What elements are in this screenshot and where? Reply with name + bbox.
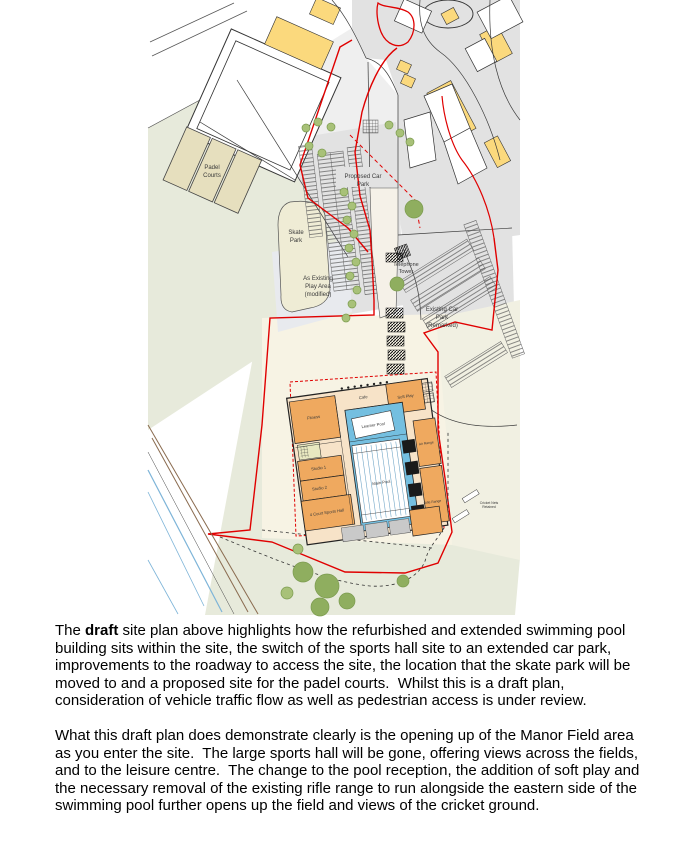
paragraph-1-text: site plan above highlights how the refur… bbox=[55, 622, 634, 709]
existing-car-park-label: Existing Car bbox=[426, 307, 458, 313]
existing-car-park-label: (Remarked) bbox=[426, 323, 458, 329]
site-plan-drawing: Padel Courts Skate Park As Existing Play… bbox=[0, 0, 685, 620]
telephone-tower-label: Telephone bbox=[393, 262, 418, 268]
existing-car-park-label: Park bbox=[436, 315, 449, 321]
leisure-centre-building bbox=[286, 375, 452, 551]
play-area-label: Play Area bbox=[305, 284, 331, 290]
paragraph-2: What this draft plan does demonstrate cl… bbox=[55, 727, 651, 815]
skate-park-label: Park bbox=[290, 238, 303, 244]
play-area-label: As Existing bbox=[303, 276, 333, 282]
body-text: The draft site plan above highlights how… bbox=[55, 622, 651, 832]
proposed-car-park-label: Park bbox=[357, 182, 370, 188]
paragraph-1-text: The bbox=[55, 622, 85, 639]
play-area-label: (modified) bbox=[305, 292, 332, 298]
paragraph-1: The draft site plan above highlights how… bbox=[55, 622, 651, 710]
proposed-car-park-label: Proposed Car bbox=[344, 174, 381, 180]
nets-note-label: Retained bbox=[482, 505, 496, 509]
fitness-block bbox=[289, 396, 340, 444]
site-plan-figure: Padel Courts Skate Park As Existing Play… bbox=[0, 0, 685, 620]
draft-emphasis: draft bbox=[85, 622, 118, 639]
document-page: Padel Courts Skate Park As Existing Play… bbox=[0, 0, 685, 846]
padel-courts-label: Courts bbox=[203, 173, 221, 179]
telephone-tower-label: Tower bbox=[399, 269, 414, 275]
skate-park-label: Skate bbox=[288, 230, 304, 236]
padel-courts-label: Padel bbox=[204, 165, 219, 171]
